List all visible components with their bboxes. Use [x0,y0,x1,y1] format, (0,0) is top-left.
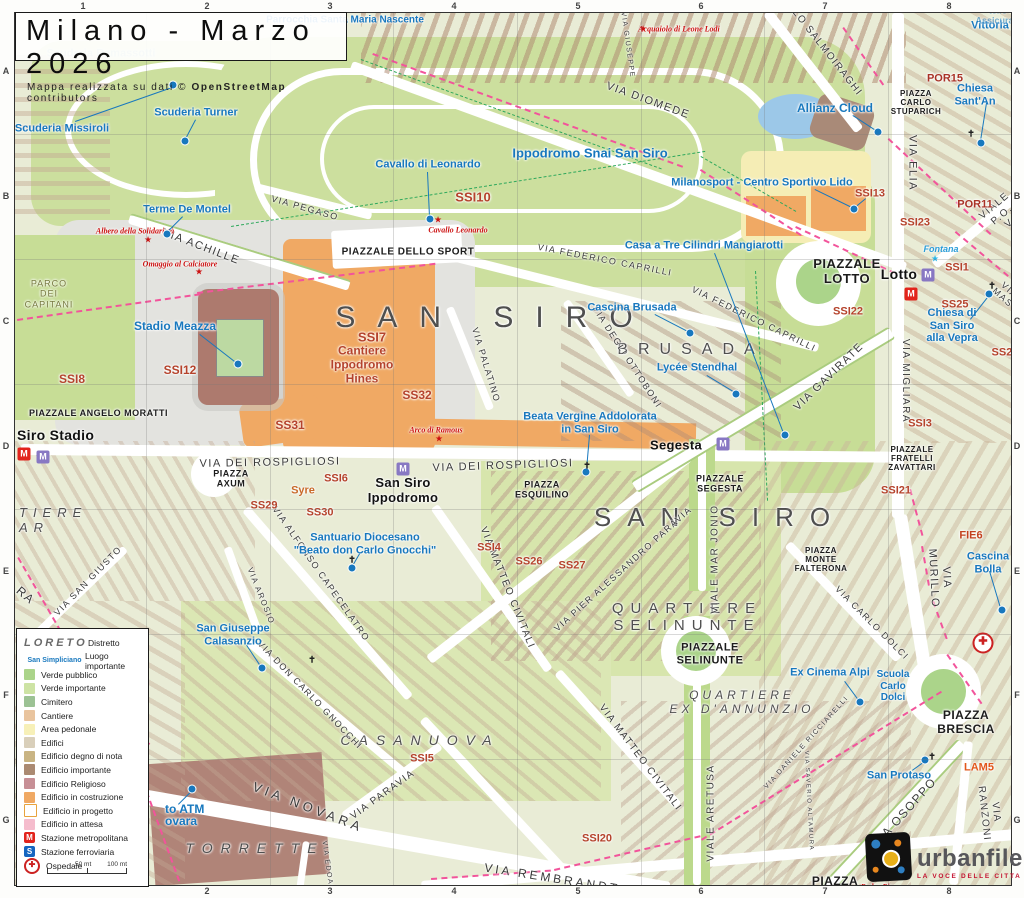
poi-label-chiesa-di-san-siro-alla-vepra: Chiesa di San Siro alla Vepra [923,307,982,345]
poi-label-san-protaso: San Protaso [867,770,931,783]
scale-50: 50 mt [75,861,91,868]
code-label-lam5: LAM5 [964,762,994,775]
legend-swatch [24,669,35,680]
square-label-piazzale-dello-sport: PIAZZALE DELLO SPORT [342,246,475,258]
poi-label-ex-cinema-alpi: Ex Cinema Alpi [790,667,870,680]
monument-label-cavallo-leonardo: Cavallo Leonardo [428,225,487,234]
poi-dot [732,390,741,399]
poi-dot [188,785,197,794]
legend-swatch [24,737,35,748]
grid-ref-5: 5 [575,1,580,11]
metro-red-icon: M [905,288,918,301]
code-label-ss32: SS32 [402,389,431,403]
square-label-piazzale-fratelli-zavattari: PIAZZALE FRATELLI ZAVATTARI [888,445,935,473]
code-label-ss25: SS25 [942,299,969,312]
legend: LORETO Distretto San Simpliciano Luogo i… [16,628,149,887]
square-label-piazzale-lotto: PIAZZALE LOTTO [813,257,881,287]
legend-swatch [24,819,35,830]
grid-ref-1: 1 [80,1,85,11]
legend-item-edifici: Edifici [17,736,148,750]
legend-item-edificio-religioso: Edificio Religioso [17,777,148,791]
legend-item-label: Verde pubblico [41,670,97,680]
legend-swatch [24,778,35,789]
square-label-piazza-axum: PIAZZA AXUM [213,469,249,490]
legend-item-stazione-metropolitana: MStazione metropolitana [17,831,148,845]
stadio-pitch [216,319,264,377]
grid-ref-d: D [3,441,10,451]
square-label-piazza-monte-falterona: PIAZZA MONTE FALTERONA [795,546,848,574]
poi-label-lyc-e-stendhal: Lycée Stendhal [657,362,737,375]
poi-dot [856,698,865,707]
grid-hline [15,509,1011,510]
grid-ref-f: F [1014,690,1020,700]
church-cross-icon: ✝ [928,752,936,763]
code-label-syre: Syre [291,485,315,498]
grid-ref-b: B [3,191,10,201]
title-box: Milano - Marzo 2026 Mappa realizzata su … [15,12,347,61]
church-cross-icon: ✝ [988,281,996,292]
grid-vline [270,13,271,885]
grid-ref-7: 7 [822,1,827,11]
code-label-ss31: SS31 [275,419,304,433]
poi-label-ippodromo-snai-san-siro: Ippodromo Snai San Siro [512,147,667,162]
poi-dot [781,431,790,440]
owl-icon [865,832,912,882]
legend-item-label: Edificio in attesa [41,819,103,829]
legend-item-cimitero: Cimitero [17,695,148,709]
grid-ref-2: 2 [204,886,209,896]
legend-item-label: Edifici [41,738,64,748]
legend-item-label: Edificio importante [41,765,111,775]
poi-dot [234,360,243,369]
poi-label-santuario-diocesano-beato-don-carlo-gnocch: Santuario Diocesano "Beato don Carlo Gno… [294,531,436,556]
road-label-viale-aretusa: VIALE ARETUSA [705,764,717,861]
grid-ref-4: 4 [451,1,456,11]
legend-swatch [24,764,35,775]
poi-label-beata-vergine-addolorata-in-san-siro: Beata Vergine Addolorata in San Siro [523,410,656,435]
code-label-ss28: SS28 [992,347,1012,360]
monument-label-acquaiolo-di-leone-lodi: Acquaiolo di Leone Lodi [638,24,720,33]
grid-ref-c: C [3,316,10,326]
grid-hline [15,134,1011,135]
grid-ref-4: 4 [451,886,456,896]
grid-ref-b: B [1014,191,1021,201]
district-label-torrette: TORRETTE [185,840,324,856]
square-label-piazza-brescia: PIAZZA BRESCIA [937,709,995,737]
legend-swatch [24,724,35,735]
road-label-via-murillo: VIA MURILLO [926,542,955,614]
grid-ref-8: 8 [946,1,951,11]
grid-hline [15,759,1011,760]
hospital-icon: ✚ [973,633,994,654]
code-label-ssi22: SSI22 [833,306,863,319]
map-subtitle: Mappa realizzata su dati © OpenStreetMap… [27,82,346,104]
logo-wordmark: urbanfile [917,847,1023,871]
road-label-via-migliara: VIA MIGLIARA [899,339,911,423]
code-label-ssi1: SSI1 [945,262,969,275]
legend-item-label: Cimitero [41,697,73,707]
road-label-viale-mar-jonio: VIALE MAR JONIO [709,504,721,613]
code-label-ssi10: SSI10 [455,191,490,206]
legend-item-verde-importante: Verde importante [17,682,148,696]
grid-ref-5: 5 [575,886,580,896]
metro-purple-icon: M [397,463,410,476]
grid-ref-a: A [3,66,10,76]
poi-label-fontana: Fontana [924,244,959,254]
code-label-ssi13: SSI13 [855,188,885,201]
grid-ref-3: 3 [327,1,332,11]
poi-dot [163,230,172,239]
legend-swatch [24,683,35,694]
station-label-siro-stadio: Siro Stadio [17,427,94,443]
legend-swatch [24,792,35,803]
monument-star-icon: ★ [856,883,864,887]
legend-item-label: Verde importante [41,683,106,693]
urbanfile-logo: urbanfile LA VOCE DELLE CITTA [866,833,1023,881]
legend-item-cantiere: Cantiere [17,709,148,723]
poi-dot [686,329,695,338]
district-label-casanuova: CASANUOVA [340,732,499,748]
grid-ref-f: F [3,690,9,700]
poi-dot [181,137,190,146]
poi-dot [998,606,1007,615]
logo-tagline: LA VOCE DELLE CITTA [917,873,1023,880]
poi-label-ovara: ovara [165,815,197,829]
code-label-ssi23: SSI23 [900,217,930,230]
monument-star-icon: ★ [195,267,203,278]
grid-vline [393,13,394,885]
grid-ref-e: E [3,566,9,576]
legend-item-stazione-ferroviaria: SStazione ferroviaria [17,845,148,859]
poi-label-scuderia-turner: Scuderia Turner [154,107,238,120]
poi-label-cascina-bolla: Cascina Bolla [967,550,1009,575]
grid-ref-6: 6 [698,886,703,896]
legend-station-icon: S [24,846,35,857]
grid-ref-7: 7 [822,886,827,896]
grid-hline [15,384,1011,385]
legend-district-label: Distretto [88,638,120,648]
station-label-segesta: Segesta [650,439,702,454]
station-label-san-siro-ippodromo: San Siro Ippodromo [368,476,439,506]
legend-swatch [24,696,35,707]
code-label-ssi12: SSI12 [164,364,197,378]
church-cross-icon: ✝ [348,555,356,566]
grid-vline [888,13,889,885]
legend-swatch [24,710,35,721]
legend-item-label: Cantiere [41,711,73,721]
grid-ref-8: 8 [946,886,951,896]
grid-ref-c: C [1014,316,1021,326]
monument-star-icon: ★ [434,215,442,226]
district-label-tiere-ar: TIERE AR [19,506,87,536]
legend-item-label: Stazione metropolitana [41,833,128,843]
district-label-quartiere-ex-d-annunzio: QUARTIERE EX D'ANNUNZIO [670,689,815,717]
metro-red-icon: M [18,448,31,461]
square-label-piazza-carlo-stuparich: PIAZZA CARLO STUPARICH [891,89,942,117]
monument-star-icon: ★ [435,434,443,445]
poi-label-terme-de-montel: Terme De Montel [143,204,231,217]
hospital-icon: ✚ [24,858,40,874]
map-title: Milano - Marzo 2026 [26,15,346,81]
legend-item-label: Edificio degno di nota [41,751,122,761]
grid-ref-a: A [1014,66,1021,76]
grid-ref-g: G [1013,815,1020,825]
code-label-cantiere-ippodromo-hines: Cantiere Ippodromo Hines [331,344,394,385]
legend-item-label: Edificio in progetto [43,806,113,816]
code-label-ssi4: SSI4 [477,542,501,555]
poi-label-milanosport-centro-sportivo-lido: Milanosport - Centro Sportivo Lido [671,177,853,190]
grid-hline [15,259,1011,260]
legend-item-label: Edificio in costruzione [41,792,123,802]
code-label-por11: POR11 [957,199,992,212]
legend-item-label: Area pedonale [41,724,96,734]
poi-label-scuola-carlo-dolci: Scuola Carlo Dolci [877,669,910,704]
legend-item-edificio-importante: Edificio importante [17,763,148,777]
grid-vline [517,13,518,885]
grid-ref-6: 6 [698,1,703,11]
grid-ref-e: E [1014,566,1020,576]
code-label-por15: POR15 [927,73,963,86]
legend-swatch [24,804,37,817]
district-label-quartiere-selinunte: QUARTIERE SELINUNTE [612,600,762,635]
legend-item-area-pedonale: Area pedonale [17,722,148,736]
district-label-brusada: BRUSADA [617,341,764,359]
poi-label-allianz-cloud: Allianz Cloud [797,102,873,116]
square-label-piazzale-selinunte: PIAZZALE SELINUNTE [677,641,744,666]
district-label-parco-dei-capitani: PARCO DEI CAPITANI [25,278,74,309]
legend-place-label: Luogo importante [85,651,148,671]
grid-vline [764,13,765,885]
poi-dot [977,139,986,148]
scale-100: 100 mt [107,861,127,868]
legend-items: Verde pubblicoVerde importanteCimiteroCa… [17,668,148,858]
legend-item-label: Stazione ferroviaria [41,847,114,857]
parco-capitani-green [15,235,135,420]
code-label-ssi6: SSI6 [324,473,348,486]
square-label-piazzale-angelo-moratti: PIAZZALE ANGELO MORATTI [29,408,168,418]
poi-dot [850,205,859,214]
code-label-fie6: FIE6 [959,530,982,543]
church-cross-icon: ✝ [308,655,316,666]
grid-ref-g: G [2,815,9,825]
legend-item-edificio-in-costruzione: Edificio in costruzione [17,790,148,804]
code-label-ss27: SS27 [559,560,586,573]
metro-purple-icon: M [922,269,935,282]
code-label-ssi3: SSI3 [908,418,932,431]
poi-label-tello-assicurazi: tello Assicurazi [975,12,1012,26]
legend-item-edificio-in-progetto: Edificio in progetto [17,804,148,818]
scale-bar: 50 mt100 mt [47,861,127,874]
poi-label-san-giuseppe-calasanzio: San Giuseppe Calasanzio [196,622,269,647]
grid-vline [641,13,642,885]
poi-dot [874,128,883,137]
legend-place-sample: San Simpliciano [24,657,85,664]
metro-purple-icon: M [37,451,50,464]
code-label-ss26: SS26 [516,556,543,569]
map-canvas: SAN SIROSAN SIROBRUSADACASANUOVATORRETTE… [14,12,1012,886]
legend-item-label: Edificio Religioso [41,779,106,789]
legend-district-sample: LORETO [24,637,88,649]
road-label-via-elia: VIA ELIA [906,135,919,191]
square-label-piazzale-segesta: PIAZZALE SEGESTA [696,474,744,495]
road-label-via-edoardo: VIA EDOARDO [320,840,337,886]
poi-label-cascina-brusada: Cascina Brusada [587,302,676,315]
grid-ref-3: 3 [327,886,332,896]
poi-label-chiesa-sant-an: Chiesa Sant'An [954,82,995,107]
code-label-ss29: SS29 [251,500,278,513]
legend-item-edificio-in-attesa: Edificio in attesa [17,818,148,832]
metro-purple-icon: M [717,438,730,451]
monument-label-omaggio-al-calciatore: Omaggio al Calciatore [143,259,218,268]
poi-label-cavallo-di-leonardo: Cavallo di Leonardo [375,159,480,172]
poi-dot [258,664,267,673]
legend-station-icon: M [24,832,35,843]
legend-swatch [24,751,35,762]
grid-hline [15,634,1011,635]
grid-ref-2: 2 [204,1,209,11]
grid-ref-d: D [1014,441,1021,451]
poi-label-casa-a-tre-cilindri-mangiarotti: Casa a Tre Cilindri Mangiarotti [625,240,783,253]
square-label-piazza-esquilino: PIAZZA ESQUILINO [515,480,569,501]
station-label-lotto: Lotto [881,266,917,282]
legend-item-edificio-degno-di-nota: Edificio degno di nota [17,750,148,764]
church-cross-icon: ✝ [583,461,591,472]
code-label-ssi21: SSI21 [881,485,911,498]
code-label-ssi20: SSI20 [582,833,612,846]
